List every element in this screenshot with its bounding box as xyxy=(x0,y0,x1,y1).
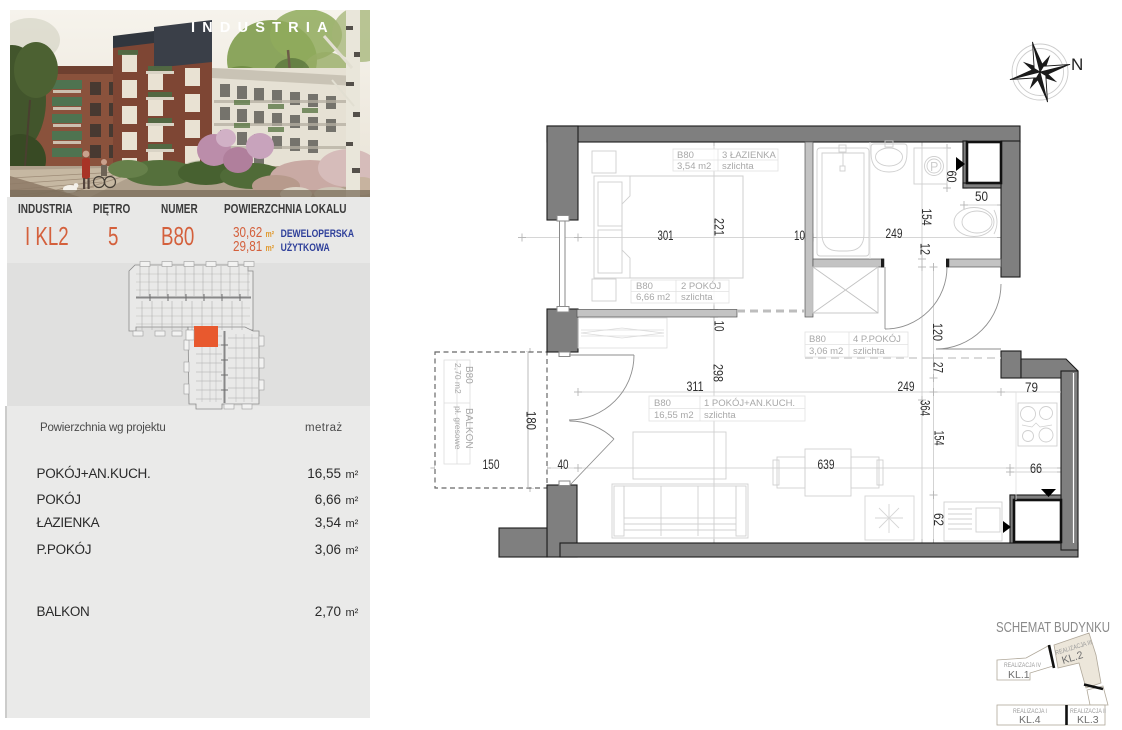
svg-text:79: 79 xyxy=(1025,379,1038,395)
svg-text:szlichta: szlichta xyxy=(681,292,713,303)
svg-text:1 POKÓJ+AN.KUCH.: 1 POKÓJ+AN.KUCH. xyxy=(704,398,795,409)
svg-text:16,55 m2: 16,55 m2 xyxy=(654,410,694,421)
svg-text:249: 249 xyxy=(886,225,903,241)
svg-text:B80: B80 xyxy=(677,150,694,161)
svg-text:szlichta: szlichta xyxy=(853,346,885,357)
svg-text:180: 180 xyxy=(524,411,540,430)
svg-text:3,06 m2: 3,06 m2 xyxy=(809,346,843,357)
svg-text:150: 150 xyxy=(483,456,500,472)
svg-text:62: 62 xyxy=(931,513,947,526)
svg-text:154: 154 xyxy=(932,431,948,446)
svg-text:szlichta: szlichta xyxy=(722,161,754,172)
svg-text:B80: B80 xyxy=(463,366,474,384)
svg-text:B80: B80 xyxy=(654,398,671,409)
svg-text:154: 154 xyxy=(919,209,935,226)
svg-text:221: 221 xyxy=(712,218,728,236)
svg-text:10: 10 xyxy=(794,227,805,243)
svg-text:6,66 m2: 6,66 m2 xyxy=(636,292,670,303)
svg-text:BALKON: BALKON xyxy=(463,408,474,449)
svg-text:KL.4: KL.4 xyxy=(1019,714,1041,726)
svg-text:SCHEMAT BUDYNKU: SCHEMAT BUDYNKU xyxy=(996,620,1110,636)
svg-text:10: 10 xyxy=(712,321,728,332)
svg-text:KL.3: KL.3 xyxy=(1077,714,1099,726)
svg-text:364: 364 xyxy=(918,400,934,416)
svg-text:66: 66 xyxy=(1030,460,1042,476)
svg-text:szlichta: szlichta xyxy=(704,410,736,421)
svg-text:2,70 m2: 2,70 m2 xyxy=(453,363,463,394)
svg-text:N: N xyxy=(1071,55,1083,74)
svg-text:120: 120 xyxy=(930,323,946,341)
svg-text:3,54 m2: 3,54 m2 xyxy=(677,161,711,172)
svg-text:pł. gresowe: pł. gresowe xyxy=(453,406,463,450)
svg-text:2 POKÓJ: 2 POKÓJ xyxy=(681,281,721,292)
svg-text:639: 639 xyxy=(818,456,835,472)
svg-text:249: 249 xyxy=(898,378,915,394)
svg-text:60: 60 xyxy=(944,171,960,183)
svg-text:40: 40 xyxy=(558,456,569,472)
svg-text:B80: B80 xyxy=(636,281,653,292)
svg-text:4 P.POKÓJ: 4 P.POKÓJ xyxy=(853,334,901,345)
svg-text:311: 311 xyxy=(687,378,704,394)
svg-text:50: 50 xyxy=(975,188,988,204)
svg-text:P: P xyxy=(930,160,938,174)
svg-text:3 ŁAZIENKA: 3 ŁAZIENKA xyxy=(722,150,777,161)
svg-text:REALIZACJA IV: REALIZACJA IV xyxy=(1004,662,1042,669)
svg-text:12: 12 xyxy=(918,243,934,255)
svg-text:27: 27 xyxy=(931,362,947,373)
svg-text:298: 298 xyxy=(711,364,727,382)
svg-text:KL.1: KL.1 xyxy=(1008,669,1030,681)
svg-text:301: 301 xyxy=(658,227,674,243)
svg-text:B80: B80 xyxy=(809,334,826,345)
